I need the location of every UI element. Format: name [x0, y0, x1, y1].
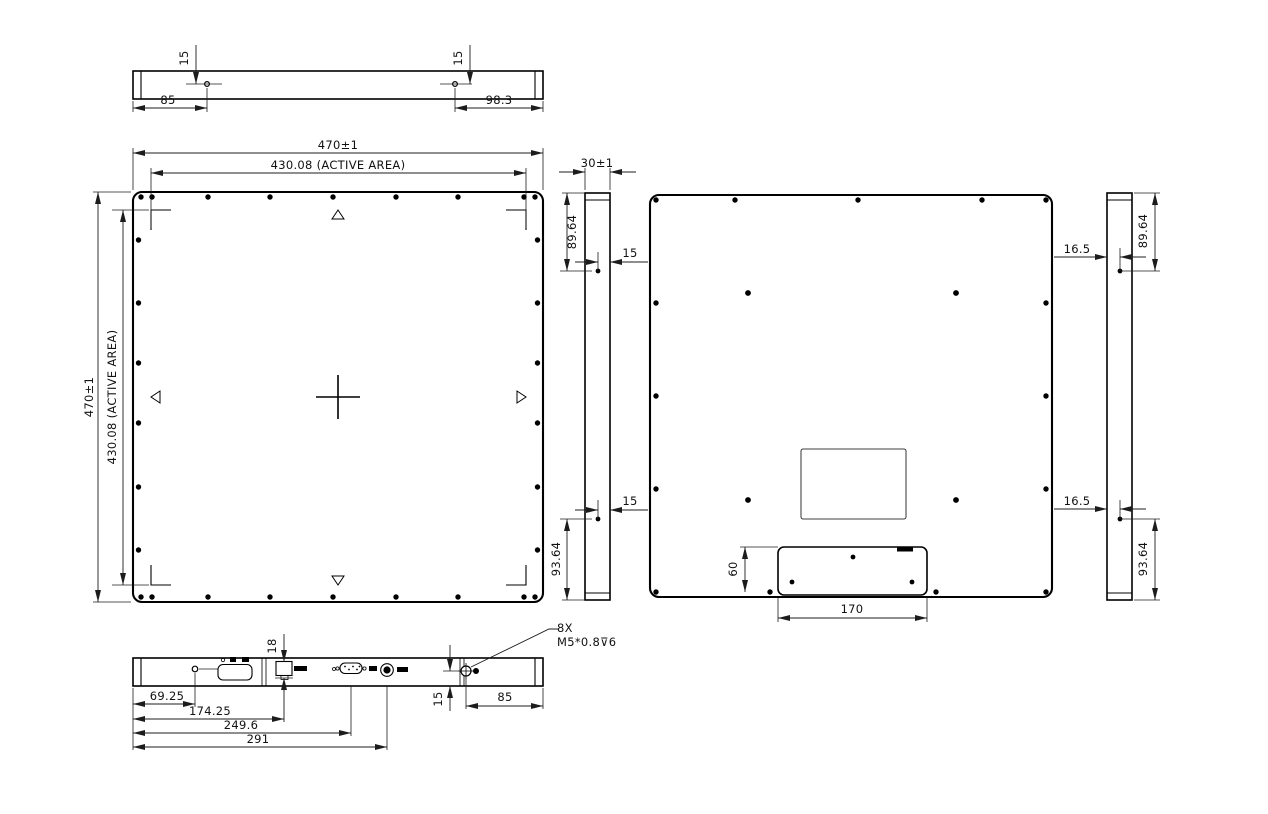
connector-box: [778, 547, 927, 595]
drawing-canvas: 15 15 85 98.3 470±1 430: [0, 0, 1268, 814]
dim-bottom-249-6: 249.6: [224, 718, 258, 732]
dim-right-16-5-bottom: 16.5: [1064, 494, 1091, 508]
dim-side-15-bottom: 15: [622, 494, 637, 508]
dim-right-89-64: 89.64: [1136, 214, 1150, 248]
dim-right-16-5-top: 16.5: [1064, 242, 1091, 256]
dim-topview-15-right: 15: [451, 50, 465, 65]
dim-topview-15-left: 15: [177, 50, 191, 65]
dim-bottom-291: 291: [247, 732, 270, 746]
dim-side-89-64: 89.64: [565, 215, 579, 249]
dim-right-93-64: 93.64: [1136, 542, 1150, 576]
dim-side-93-64: 93.64: [549, 542, 563, 576]
battery-cover: [218, 665, 252, 681]
dim-front-active-height: 430.08 (ACTIVE AREA): [105, 330, 119, 465]
thread-callout-line1: 8X: [557, 621, 573, 635]
center-cross-mark: [316, 375, 360, 419]
dim-bottom-174-25: 174.25: [189, 704, 231, 718]
dim-side-15-top: 15: [622, 246, 637, 260]
orientation-triangle-top: [332, 210, 344, 219]
rj45-connector: [276, 662, 307, 680]
dim-topview-98-3: 98.3: [486, 93, 513, 107]
back-view-screw-dots: [653, 197, 1048, 594]
thread-callout-line2: M5*0.8⊽6: [557, 635, 616, 649]
dim-bottom-85: 85: [497, 690, 512, 704]
orientation-triangle-bottom: [332, 576, 344, 585]
orientation-triangle-right: [517, 391, 526, 403]
indicator-led: [221, 658, 224, 661]
dim-back-170: 170: [841, 602, 864, 616]
dsub-connector: [336, 663, 366, 674]
dim-side-thickness: 30±1: [581, 156, 614, 170]
label-area: [801, 449, 906, 519]
orientation-triangle-left: [151, 391, 160, 403]
indicator-led: [230, 657, 236, 662]
dim-front-overall-height: 470±1: [82, 377, 96, 417]
dim-bottom-69-25: 69.25: [150, 689, 184, 703]
dim-back-60: 60: [726, 561, 740, 576]
front-view: 470±1 430.08 (ACTIVE AREA) 470±1 430.08 …: [82, 138, 543, 602]
side-view-right: 89.64 16.5 16.5 93.64: [1054, 193, 1160, 600]
indicator-led: [242, 657, 249, 662]
technical-drawing: 15 15 85 98.3 470±1 430: [0, 0, 1268, 814]
power-connector: [381, 664, 394, 677]
dim-front-active-width: 430.08 (ACTIVE AREA): [271, 158, 406, 172]
connector-box-notch: [897, 547, 913, 552]
dim-bottom-18: 18: [265, 638, 279, 653]
side-view-inner: 30±1 89.64 15 15 93.64: [549, 156, 648, 600]
dim-front-overall-width: 470±1: [318, 138, 358, 152]
threaded-hole: [458, 663, 479, 679]
bottom-edge-view: 18 69.25 174.25 249.6 291 15 85 8X M5*0.…: [133, 621, 616, 750]
top-edge-view: 15 15 85 98.3: [133, 45, 543, 112]
thread-callout-leader: [471, 629, 558, 667]
dim-topview-85: 85: [160, 93, 175, 107]
mounting-hole: [192, 666, 198, 672]
back-view: 60 170: [650, 195, 1052, 622]
dim-bottom-15: 15: [431, 691, 445, 706]
